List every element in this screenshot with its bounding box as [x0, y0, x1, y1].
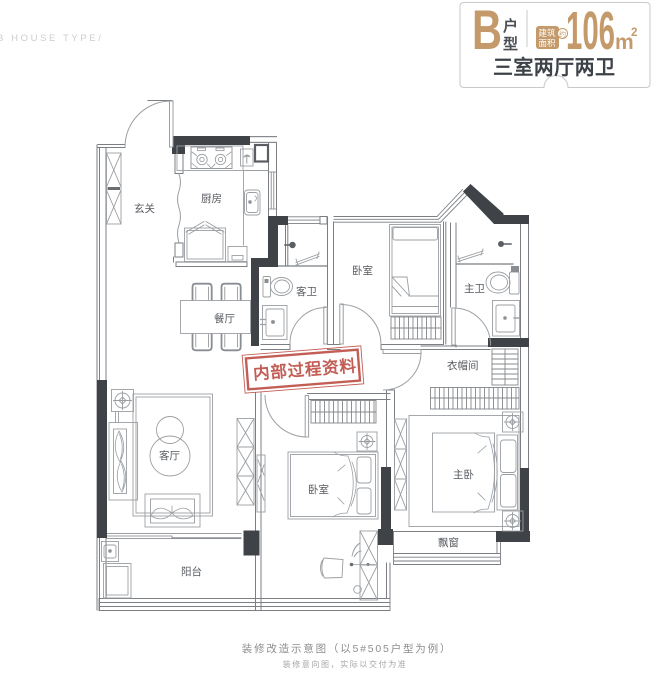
svg-text:主卫: 主卫 [464, 283, 485, 295]
svg-text:装修意向图，实际以交付为准: 装修意向图，实际以交付为准 [283, 659, 408, 669]
svg-text:内部过程资料: 内部过程资料 [252, 355, 357, 383]
svg-text:阳台: 阳台 [181, 565, 202, 578]
svg-text:客厅: 客厅 [159, 449, 180, 462]
svg-text:B: B [472, 0, 502, 61]
svg-text:建筑: 建筑 [539, 28, 557, 38]
svg-text:衣帽间: 衣帽间 [447, 359, 479, 372]
svg-text:型: 型 [503, 35, 518, 53]
svg-text:玄关: 玄关 [134, 202, 155, 215]
svg-text:主卧: 主卧 [453, 468, 474, 481]
svg-text:卧室: 卧室 [308, 483, 329, 496]
svg-text:客卫: 客卫 [296, 285, 317, 298]
svg-text:户: 户 [503, 17, 518, 35]
svg-text:卧室: 卧室 [352, 264, 373, 277]
svg-text:装修改造示意图（以5#505户型为例）: 装修改造示意图（以5#505户型为例） [242, 642, 452, 655]
svg-text:餐厅: 餐厅 [214, 312, 235, 325]
svg-text:106: 106 [566, 1, 615, 61]
svg-text:B HOUSE TYPE/: B HOUSE TYPE/ [0, 33, 103, 44]
svg-text:飘窗: 飘窗 [438, 536, 459, 549]
svg-text:厨房: 厨房 [201, 192, 222, 205]
svg-text:三室两厅两卫: 三室两厅两卫 [493, 55, 615, 79]
svg-text:2: 2 [631, 27, 637, 39]
svg-text:约: 约 [559, 30, 566, 39]
svg-text:面积: 面积 [539, 38, 557, 48]
